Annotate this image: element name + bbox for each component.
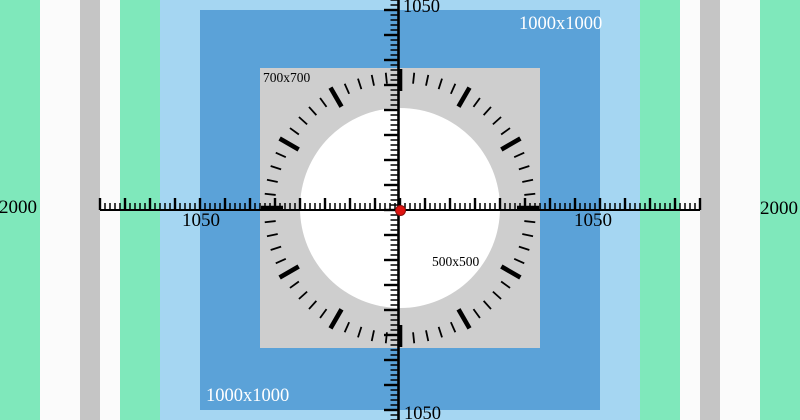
stripe-white-left-outer bbox=[40, 0, 80, 420]
stripe-gray-right bbox=[700, 0, 720, 420]
edge-label-right: 2000 bbox=[760, 199, 798, 218]
blue-square-label-topright: 1000x1000 bbox=[519, 15, 602, 34]
blue-square-label-bottomleft: 1000x1000 bbox=[206, 387, 289, 406]
calibration-pattern: 1050 1050 1050 1050 2000 2000 1000x1000 … bbox=[0, 0, 800, 420]
axis-label-left: 1050 bbox=[182, 211, 220, 230]
axis-label-top: 1050 bbox=[403, 0, 440, 17]
stripe-green-left-inner bbox=[120, 0, 160, 420]
axis-label-right: 1050 bbox=[574, 211, 612, 230]
axis-label-bottom: 1050 bbox=[404, 405, 441, 420]
stripe-gray-left bbox=[80, 0, 100, 420]
center-dot bbox=[395, 205, 406, 216]
stripe-green-right-inner bbox=[640, 0, 680, 420]
white-circle-label: 500x500 bbox=[432, 255, 479, 269]
stripe-white-right-outer bbox=[720, 0, 760, 420]
stripe-white-left-inner bbox=[100, 0, 120, 420]
gray-square-label: 700x700 bbox=[263, 71, 310, 85]
stripe-white-right-inner bbox=[680, 0, 700, 420]
edge-label-left: 2000 bbox=[0, 198, 37, 217]
